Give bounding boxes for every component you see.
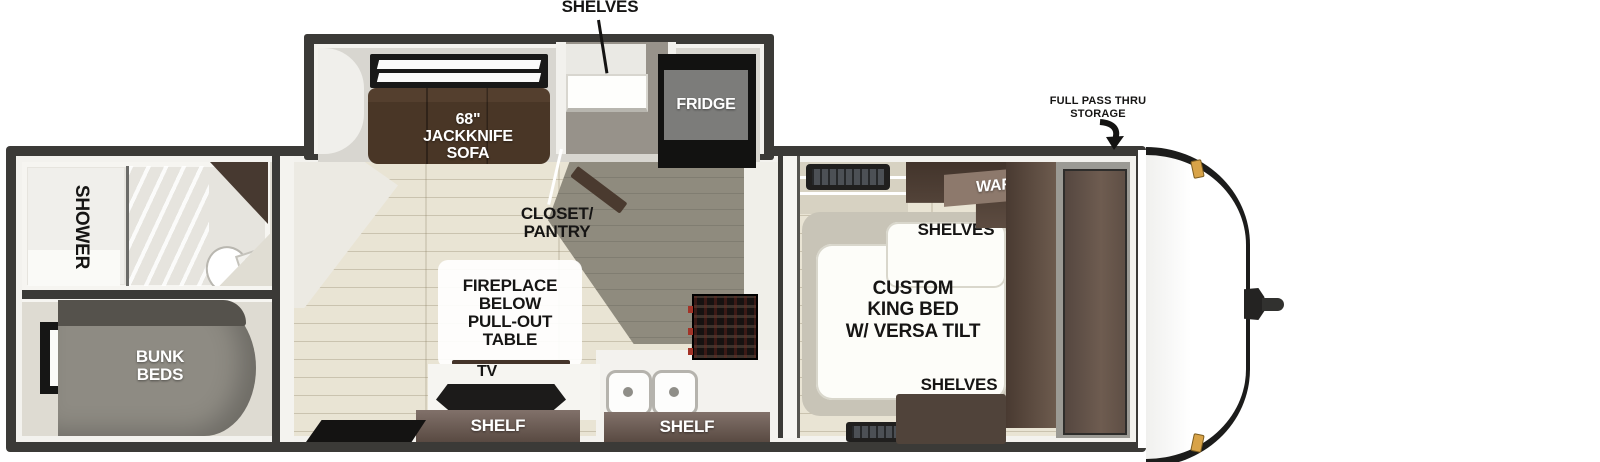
bunk-top-edge <box>58 300 246 326</box>
fireplace-label: FIREPLACE BELOW PULL-OUT TABLE <box>440 277 580 349</box>
cap-gap <box>1138 150 1146 448</box>
front-cap <box>1146 147 1250 462</box>
roof-vent-top-grille <box>812 169 884 185</box>
tv-shelf-label: SHELF <box>471 417 526 435</box>
floorplan-stage: SHOWER BUNK BEDS SHELF FIREPLACE BELOW P… <box>0 0 1600 462</box>
entry-step <box>306 420 426 442</box>
king-bed-label: CUSTOM KING BED W/ VERSA TILT <box>818 278 1008 342</box>
stove-knob <box>688 306 693 313</box>
tv-shelf: SHELF <box>416 410 580 442</box>
hitch-tongue <box>1262 298 1284 311</box>
bedroom-wall <box>783 156 797 438</box>
fridge-panel: FRIDGE <box>664 70 748 140</box>
closet-pantry-label: CLOSET/ PANTRY <box>498 205 616 241</box>
fridge-label: FRIDGE <box>676 97 735 114</box>
shower-glass-door <box>126 166 209 288</box>
sink-basin-left <box>606 370 652 416</box>
kitchen-shelf: SHELF <box>604 412 770 442</box>
stove-knob <box>688 328 693 335</box>
faucet-dot <box>623 387 633 397</box>
pass-thru-label: FULL PASS THRU STORAGE <box>1036 95 1160 121</box>
window-pane <box>377 60 541 69</box>
partition-wall-core <box>22 290 272 299</box>
bed-foot-cabinet <box>896 394 1006 444</box>
faucet-dot <box>669 387 679 397</box>
sofa-window <box>370 54 548 88</box>
pass-thru-arrow-icon <box>1096 119 1126 151</box>
kitchen-shelf-label: SHELF <box>660 418 715 436</box>
left-interior-wall <box>280 156 294 442</box>
bed-shelves-bottom-label: SHELVES <box>906 376 1012 394</box>
bunk-beds-label: BUNK BEDS <box>98 348 222 384</box>
left-interior-wall-core <box>272 156 280 442</box>
shelves-unit <box>566 74 648 112</box>
shower-label: SHOWER <box>65 157 91 297</box>
stove-cooktop <box>692 294 758 360</box>
cabinet-ledge <box>800 192 908 195</box>
sink-basin-right <box>652 370 698 416</box>
stove-knob <box>688 348 693 355</box>
shelves-callout-label: SHELVES <box>544 0 656 16</box>
sofa-label: 68" JACKKNIFE SOFA <box>398 112 538 163</box>
shower-room <box>22 162 270 290</box>
tv-label: TV <box>434 364 540 381</box>
window-pane <box>377 73 541 82</box>
storage-door <box>1063 169 1127 435</box>
wardrobe-side <box>1006 162 1056 428</box>
overhead-cabinet <box>210 162 268 224</box>
